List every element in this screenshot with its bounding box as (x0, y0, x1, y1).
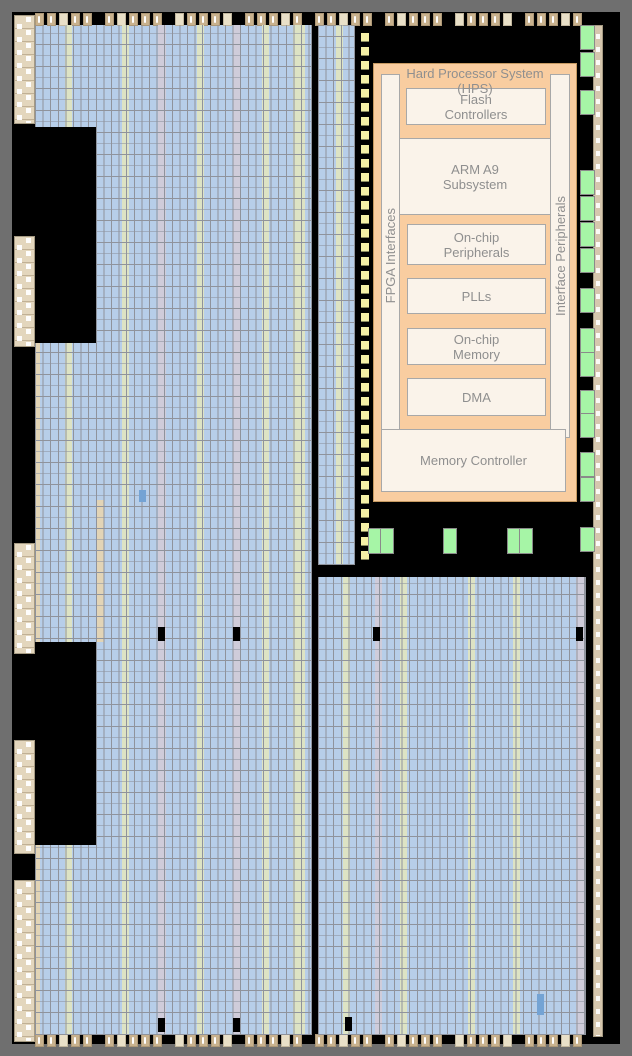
io-pin-icon (576, 1037, 578, 1044)
memory-controller-label: Memory Controller (420, 453, 527, 468)
io-pin-icon (366, 1037, 368, 1044)
fabric-column-stripe (35, 845, 40, 1035)
io-pin-icon (214, 1037, 216, 1044)
fabric-column-stripe (262, 25, 269, 1035)
io-cell (455, 1034, 464, 1047)
io-cell (83, 13, 92, 26)
hps-block-dma[interactable]: DMA (407, 378, 546, 416)
fabric-column-stripe (343, 577, 350, 1035)
fabric-column-stripe (122, 25, 129, 1035)
io-pin-icon (272, 1037, 274, 1044)
io-cell (35, 13, 44, 26)
io-cell (129, 1034, 138, 1047)
io-cell (269, 13, 278, 26)
io-cell (175, 1034, 184, 1047)
io-pin-icon (424, 1037, 426, 1044)
io-pin-icon (424, 16, 426, 23)
hps-block-plls[interactable]: PLLs (407, 278, 546, 314)
io-cell (455, 13, 464, 26)
transceiver-block (580, 452, 595, 477)
transceiver-block (580, 25, 595, 50)
io-pin-icon (552, 16, 554, 23)
hps-pll-block (380, 528, 394, 554)
io-pin-icon (202, 1037, 204, 1044)
io-pin-icon (540, 1037, 542, 1044)
io-pin-icon (74, 1037, 76, 1044)
io-cell (503, 13, 512, 26)
io-pin-icon (190, 1037, 192, 1044)
hps-pll-block (519, 528, 533, 554)
io-cell (339, 1034, 348, 1047)
selected-cell[interactable] (537, 994, 544, 1015)
io-cell (479, 13, 488, 26)
hps-title: Hard Processor System (HPS) (374, 66, 576, 96)
io-cell (281, 1034, 290, 1047)
io-pin-icon (248, 16, 250, 23)
io-cell (153, 1034, 162, 1047)
io-cell (117, 1034, 126, 1047)
transceiver-block (580, 328, 595, 353)
io-cell (479, 1034, 488, 1047)
io-pin-icon (260, 16, 262, 23)
transceiver-block (580, 390, 595, 415)
column-end-marker (373, 627, 380, 641)
io-cell (281, 13, 290, 26)
io-cell (199, 1034, 208, 1047)
io-pin-icon (540, 16, 542, 23)
io-pin-icon (50, 1037, 52, 1044)
io-pin-icon (144, 1037, 146, 1044)
io-cell (433, 1034, 442, 1047)
transceiver-block (580, 248, 595, 273)
io-pin-icon (470, 16, 472, 23)
io-cell (245, 13, 254, 26)
fabric-notch-upper (35, 127, 96, 343)
io-cell (385, 1034, 394, 1047)
io-cell (421, 1034, 430, 1047)
column-end-marker (233, 627, 240, 641)
io-pin-icon (528, 1037, 530, 1044)
io-cell (467, 13, 476, 26)
io-row-top (35, 13, 601, 26)
io-pin-icon (156, 16, 158, 23)
io-pin-icon (330, 16, 332, 23)
io-cell (573, 1034, 582, 1047)
io-pin-icon (576, 16, 578, 23)
io-pin-icon (38, 1037, 40, 1044)
io-pin-icon (108, 1037, 110, 1044)
transceiver-block (580, 352, 595, 377)
io-pin-icon (470, 1037, 472, 1044)
fpga-interfaces-label: FPGA Interfaces (383, 208, 398, 303)
io-pin-icon (108, 16, 110, 23)
transceiver-block (580, 196, 595, 221)
io-cell (537, 1034, 546, 1047)
hps-region[interactable]: Hard Processor System (HPS) FPGA Interfa… (373, 63, 577, 502)
io-pin-icon (144, 16, 146, 23)
io-pin-icon (202, 16, 204, 23)
io-pin-icon (366, 16, 368, 23)
io-cell (363, 1034, 372, 1047)
io-cell (129, 13, 138, 26)
io-cell (561, 1034, 570, 1047)
io-cell (409, 13, 418, 26)
io-cell (433, 13, 442, 26)
dma-label: DMA (462, 390, 491, 405)
io-pin-icon (552, 1037, 554, 1044)
io-pin-icon (494, 16, 496, 23)
io-cell (561, 13, 570, 26)
io-pin-icon (50, 16, 52, 23)
fabric-notch-lower (35, 642, 96, 845)
fabric-column-stripe (158, 25, 166, 1035)
fabric-column-stripe (197, 25, 204, 1035)
hps-block-onchip-peripherals[interactable]: On-chip Peripherals (407, 224, 546, 265)
onchip-memory-label: On-chip Memory (453, 332, 500, 362)
io-cell (47, 13, 56, 26)
transceiver-block (580, 222, 595, 247)
fabric-column-stripe (375, 577, 382, 1035)
io-cell (491, 1034, 500, 1047)
io-cell (315, 13, 324, 26)
io-cell (327, 1034, 336, 1047)
io-cell (83, 1034, 92, 1047)
io-cell (257, 1034, 266, 1047)
io-cell (223, 13, 232, 26)
io-cell (397, 13, 406, 26)
column-end-marker (158, 627, 165, 641)
io-pin-icon (436, 16, 438, 23)
io-pin-icon (388, 16, 390, 23)
column-end-marker (158, 1018, 165, 1032)
hps-boundary-io-column (361, 28, 369, 560)
io-cell (211, 1034, 220, 1047)
io-cell (327, 13, 336, 26)
fabric-column-stripe (576, 577, 584, 1035)
io-cell (421, 13, 430, 26)
io-pin-icon (354, 1037, 356, 1044)
io-cell (71, 13, 80, 26)
io-pin-icon (86, 1037, 88, 1044)
column-end-marker (345, 1017, 352, 1031)
io-cell (105, 13, 114, 26)
io-cell (105, 1034, 114, 1047)
fabric-column-stripe (336, 25, 343, 565)
io-pin-icon (38, 16, 40, 23)
io-cell (525, 13, 534, 26)
io-cell (35, 1034, 44, 1047)
io-cell (525, 1034, 534, 1047)
transceiver-block (580, 90, 595, 115)
io-pin-icon (528, 16, 530, 23)
io-pin-icon (318, 1037, 320, 1044)
transceiver-block (580, 170, 595, 195)
column-end-marker (576, 627, 583, 641)
hps-block-onchip-memory[interactable]: On-chip Memory (407, 328, 546, 365)
onchip-peripherals-label: On-chip Peripherals (444, 230, 510, 260)
io-cell (59, 1034, 68, 1047)
io-pin-icon (412, 16, 414, 23)
io-cell (187, 1034, 196, 1047)
io-pin-icon (330, 1037, 332, 1044)
io-cell (293, 1034, 302, 1047)
io-cell (467, 1034, 476, 1047)
io-strip-left (14, 15, 35, 124)
io-cell (187, 13, 196, 26)
io-cell (351, 1034, 360, 1047)
selected-cell[interactable] (139, 490, 146, 502)
fabric-column-stripe (233, 25, 241, 1035)
io-cell (503, 1034, 512, 1047)
fabric-column-stripe (400, 577, 407, 1035)
io-cell (211, 13, 220, 26)
hps-block-arm-a9-subsystem[interactable]: ARM A9 Subsystem (399, 138, 551, 215)
io-cell (491, 13, 500, 26)
io-pin-icon (296, 16, 298, 23)
io-pin-icon (260, 1037, 262, 1044)
fabric-column-stripe (513, 577, 520, 1035)
io-strip-left (14, 543, 35, 654)
plls-label: PLLs (462, 289, 492, 304)
io-pin-icon (494, 1037, 496, 1044)
io-cell (47, 1034, 56, 1047)
io-cell (315, 1034, 324, 1047)
io-pin-icon (296, 1037, 298, 1044)
column-end-marker (233, 1018, 240, 1032)
fabric-column-stripe (35, 343, 40, 643)
hps-pll-block (443, 528, 457, 554)
io-pin-icon (248, 1037, 250, 1044)
io-cell (397, 1034, 406, 1047)
io-pin-icon (132, 16, 134, 23)
io-strip-left (14, 236, 35, 347)
hps-interface-peripherals-bar[interactable]: Interface Peripherals (550, 74, 570, 438)
io-cell (245, 1034, 254, 1047)
transceiver-block (580, 413, 595, 438)
io-pin-icon (354, 16, 356, 23)
transceiver-block (580, 288, 595, 313)
fpga-fabric-center-column[interactable] (318, 25, 355, 565)
io-pin-icon (436, 1037, 438, 1044)
io-cell (223, 1034, 232, 1047)
transceiver-block (580, 527, 595, 552)
io-pin-icon (132, 1037, 134, 1044)
io-pin-icon (190, 16, 192, 23)
io-cell (549, 1034, 558, 1047)
fabric-column-stripe (293, 25, 305, 1035)
io-cell (537, 13, 546, 26)
io-pin-icon (214, 16, 216, 23)
io-cell (385, 13, 394, 26)
io-cell (141, 13, 150, 26)
io-cell (269, 1034, 278, 1047)
transceiver-block (580, 52, 595, 77)
fabric-column-stripe (97, 500, 104, 642)
io-strip-left (14, 740, 35, 854)
io-cell (549, 13, 558, 26)
io-pin-icon (388, 1037, 390, 1044)
io-pin-icon (74, 16, 76, 23)
io-pin-icon (156, 1037, 158, 1044)
io-cell (141, 1034, 150, 1047)
io-pin-icon (318, 16, 320, 23)
io-strip-left (14, 880, 35, 1042)
chip-floorplan: Hard Processor System (HPS) FPGA Interfa… (0, 0, 632, 1056)
io-pin-icon (482, 16, 484, 23)
io-pin-icon (272, 16, 274, 23)
io-row-bottom (35, 1034, 601, 1047)
io-cell (71, 1034, 80, 1047)
io-pin-icon (482, 1037, 484, 1044)
io-cell (409, 1034, 418, 1047)
arm-a9-label: ARM A9 Subsystem (443, 162, 507, 192)
io-cell (175, 13, 184, 26)
fabric-column-stripe (468, 577, 475, 1035)
transceiver-block (580, 477, 595, 502)
flash-controllers-label: Flash Controllers (445, 92, 508, 122)
io-cell (363, 13, 372, 26)
hps-block-memory-controller[interactable]: Memory Controller (381, 429, 566, 492)
interface-peripherals-label: Interface Peripherals (553, 196, 568, 316)
io-pin-icon (412, 1037, 414, 1044)
io-pin-icon (86, 16, 88, 23)
hps-fpga-interfaces-bar[interactable]: FPGA Interfaces (381, 74, 400, 438)
fpga-fabric-bottom-right[interactable] (318, 577, 586, 1035)
io-cell (351, 13, 360, 26)
